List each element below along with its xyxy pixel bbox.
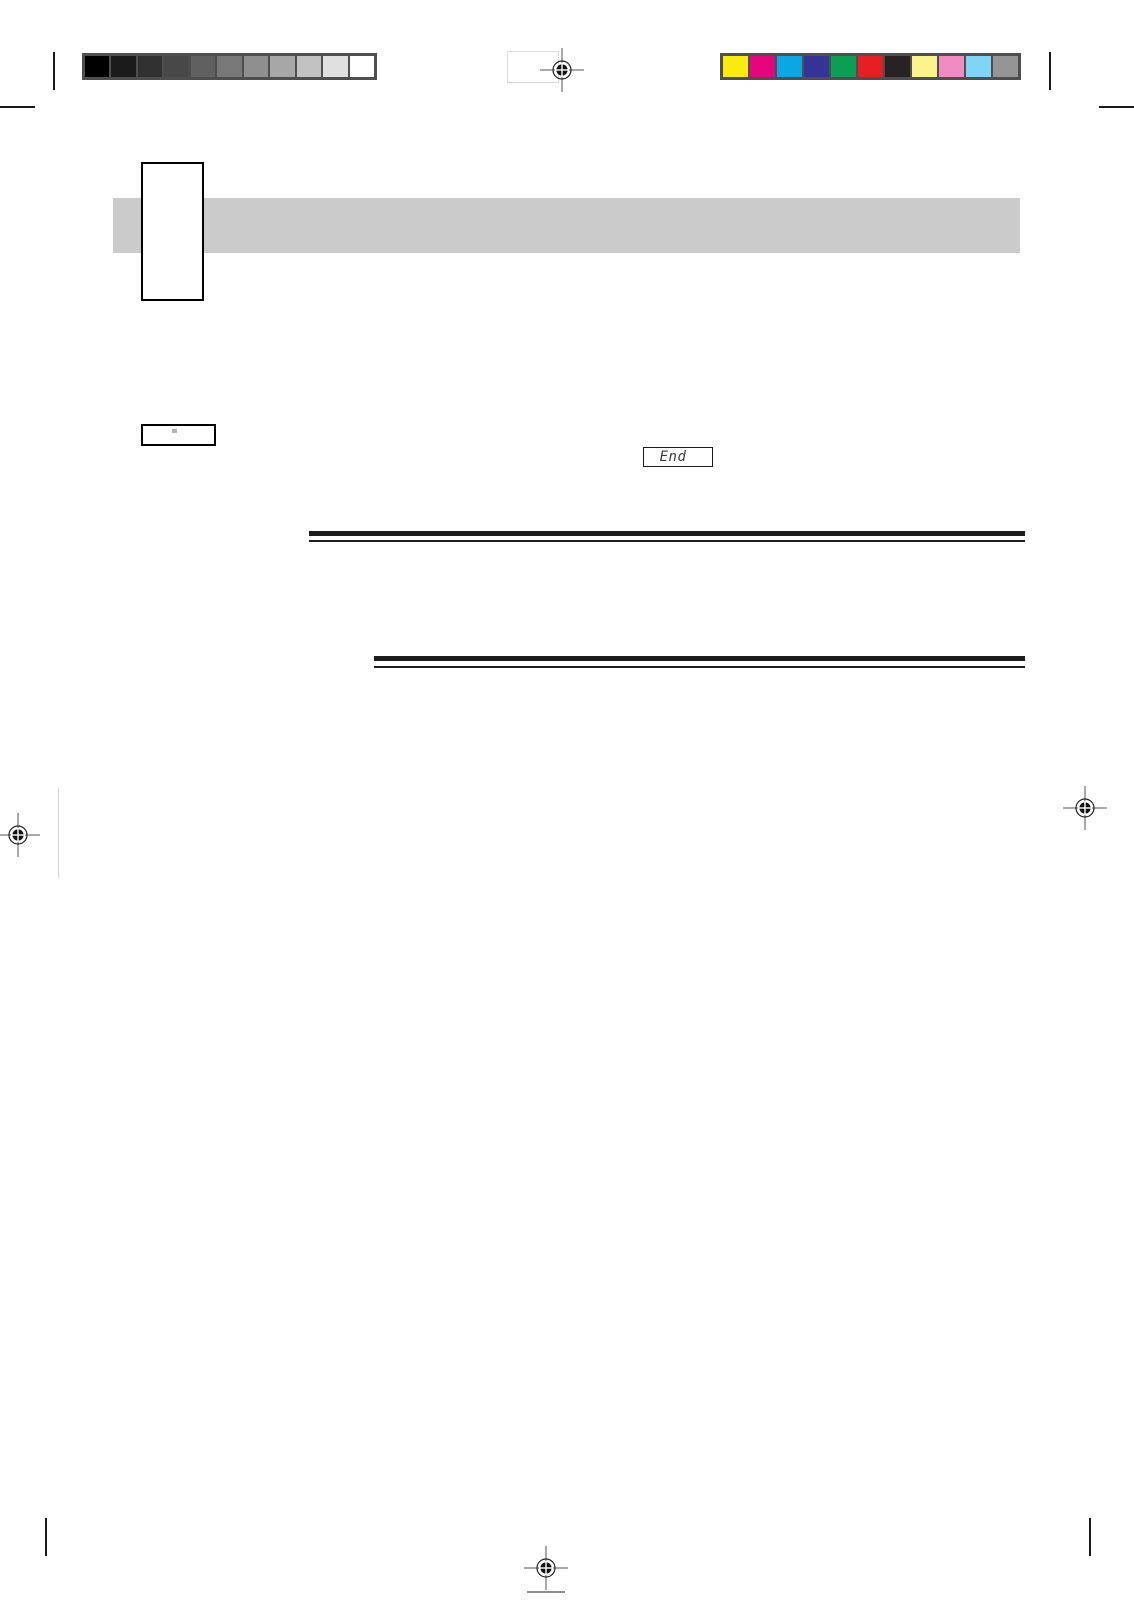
key-button-box (141, 424, 216, 446)
color-swatch (750, 56, 775, 77)
chapter-header-bar (113, 198, 1020, 253)
color-swatch (912, 56, 937, 77)
color-swatch (244, 56, 268, 77)
registration-mark-icon (524, 1546, 568, 1590)
color-swatch (323, 56, 347, 77)
color-swatch (85, 56, 109, 77)
color-swatch (191, 56, 215, 77)
crop-mark-top-right-horizontal (1099, 106, 1134, 108)
registration-mark-icon (1063, 786, 1107, 830)
section-rule-thick (374, 656, 1025, 661)
grayscale-calibration-bar (82, 53, 377, 80)
color-swatch (138, 56, 162, 77)
section-rule-thin (309, 540, 1025, 542)
color-swatch (297, 56, 321, 77)
color-swatch (723, 56, 748, 77)
color-swatch (111, 56, 135, 77)
fold-mark-line (58, 788, 59, 878)
color-swatch (777, 56, 802, 77)
color-calibration-bar (720, 53, 1021, 80)
registration-mark-icon (0, 813, 40, 857)
end-display-label: End (660, 450, 687, 464)
tiny-label-mark (172, 429, 177, 433)
color-swatch (993, 56, 1018, 77)
color-swatch (217, 56, 241, 77)
section-rule-thin (374, 666, 1025, 668)
end-display-box: End (643, 447, 713, 467)
crop-mark-bottom-left-vertical (45, 1518, 47, 1556)
registration-mark-icon (540, 48, 584, 92)
color-swatch (966, 56, 991, 77)
color-swatch (270, 56, 294, 77)
color-swatch (939, 56, 964, 77)
color-swatch (885, 56, 910, 77)
chapter-tab-box (141, 162, 204, 301)
color-swatch (858, 56, 883, 77)
fold-mark-line (527, 1591, 565, 1593)
crop-mark-bottom-right-vertical (1089, 1518, 1091, 1556)
manual-proof-page: End (0, 0, 1134, 1617)
section-rule-thick (309, 531, 1025, 536)
crop-mark-top-left-horizontal (0, 106, 35, 108)
color-swatch (831, 56, 856, 77)
color-swatch (804, 56, 829, 77)
color-swatch (164, 56, 188, 77)
crop-mark-top-right-vertical (1049, 52, 1051, 90)
color-swatch (350, 56, 374, 77)
crop-mark-top-left-vertical (53, 52, 55, 90)
